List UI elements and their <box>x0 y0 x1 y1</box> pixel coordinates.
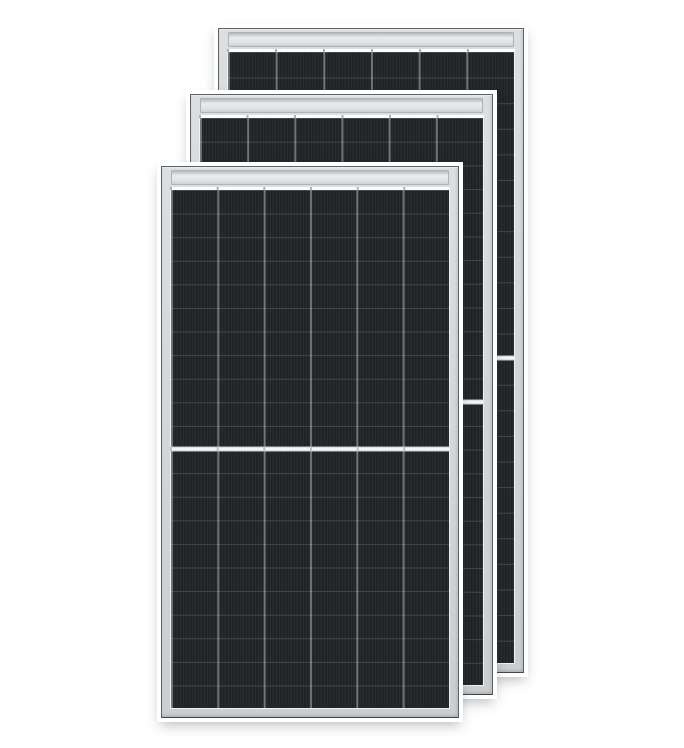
panel-frame-top-rail <box>200 98 483 113</box>
panel-frame-top-rail <box>171 170 449 185</box>
solar-panel-front <box>161 166 459 718</box>
panel-center-divider <box>170 447 450 452</box>
solar-panel-product-image <box>0 0 684 748</box>
panel-frame-top-rail <box>228 32 514 47</box>
panel-cell-grid <box>170 190 450 709</box>
